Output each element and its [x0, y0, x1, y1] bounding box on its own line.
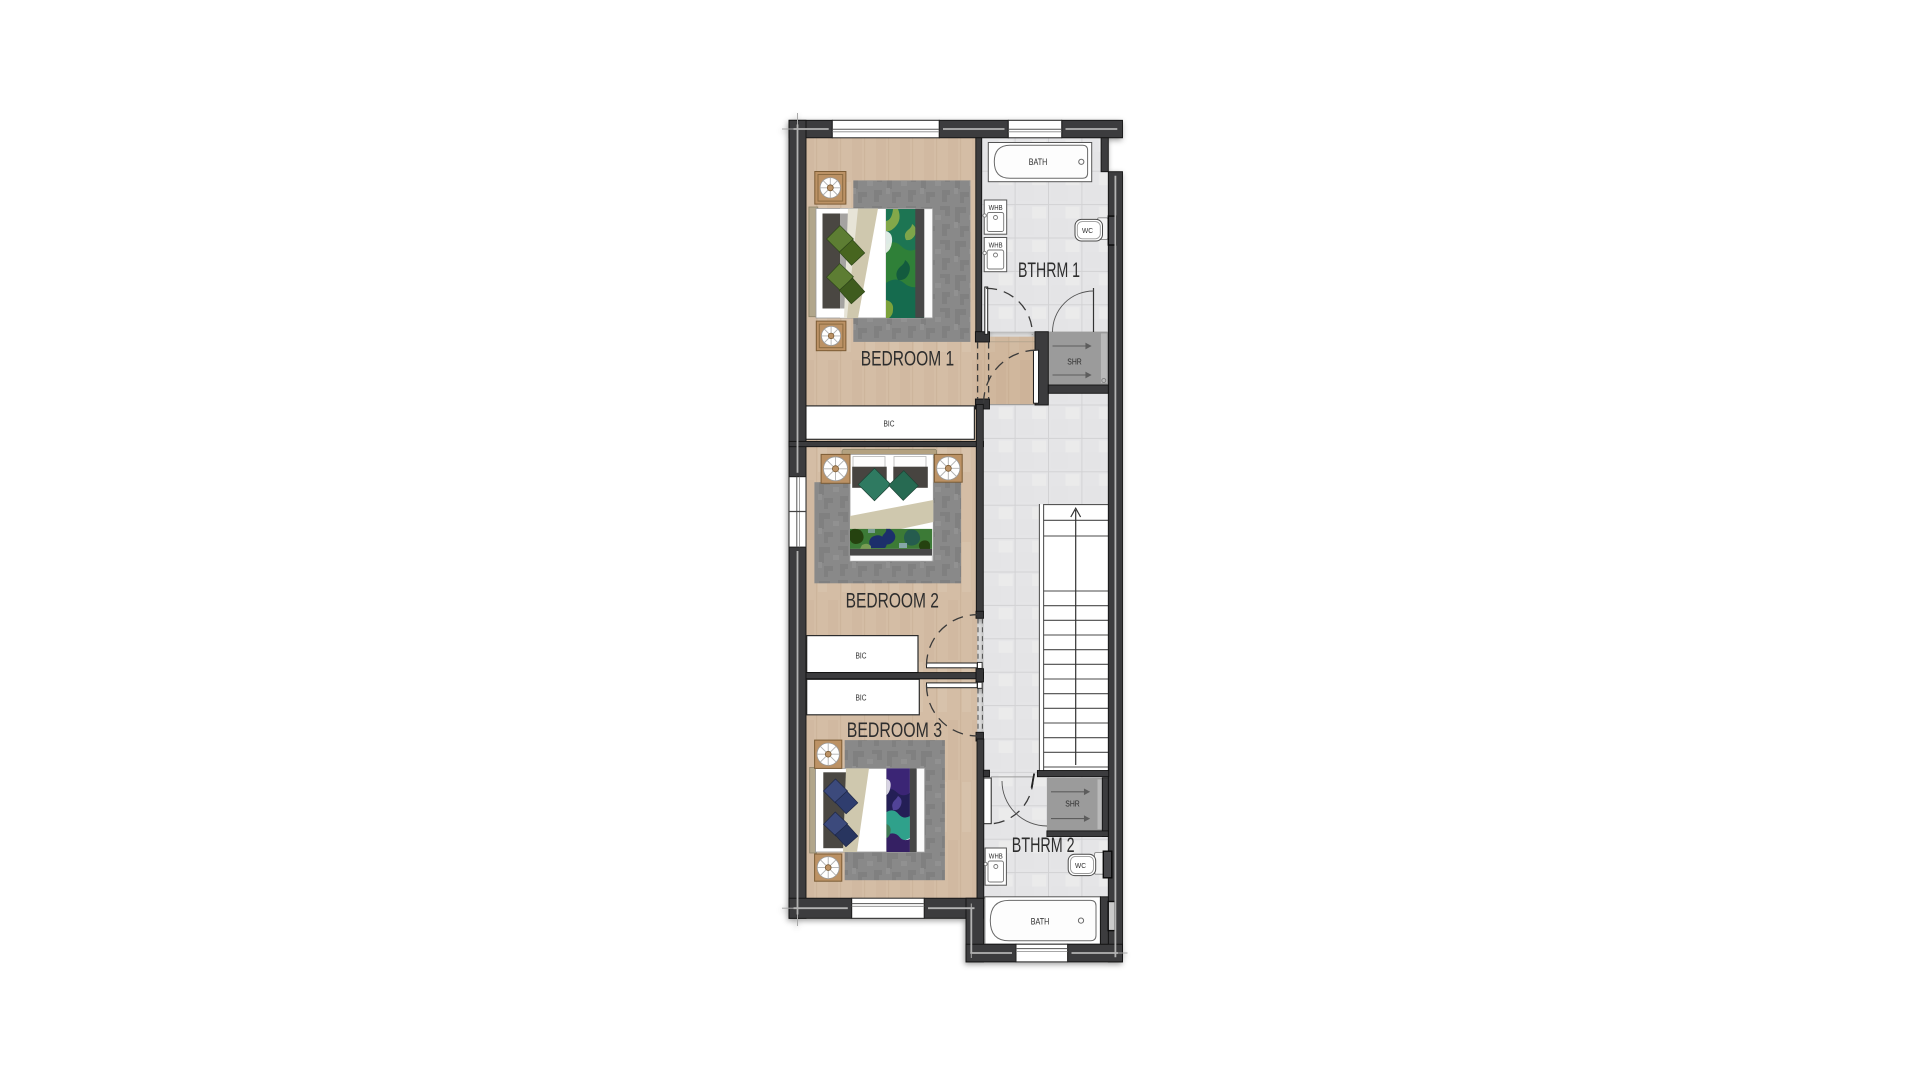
svg-text:BIC: BIC: [884, 419, 895, 429]
svg-text:SHR: SHR: [1067, 358, 1082, 367]
svg-text:WHB: WHB: [989, 852, 1003, 861]
svg-text:BIC: BIC: [856, 693, 867, 703]
svg-text:BTHRM 1: BTHRM 1: [1018, 259, 1080, 282]
svg-text:WHB: WHB: [989, 241, 1003, 250]
svg-text:BATH: BATH: [1031, 917, 1050, 928]
svg-text:BIC: BIC: [856, 651, 867, 661]
svg-text:SHR: SHR: [1065, 800, 1080, 809]
svg-text:BEDROOM 3: BEDROOM 3: [847, 719, 942, 742]
svg-text:WC: WC: [1075, 861, 1087, 870]
svg-text:BATH: BATH: [1029, 157, 1048, 168]
svg-text:BTHRM 2: BTHRM 2: [1012, 834, 1075, 857]
svg-text:WC: WC: [1082, 226, 1094, 235]
svg-text:BEDROOM 2: BEDROOM 2: [846, 590, 939, 613]
svg-text:WHB: WHB: [989, 203, 1003, 212]
svg-text:BEDROOM 1: BEDROOM 1: [861, 348, 954, 371]
